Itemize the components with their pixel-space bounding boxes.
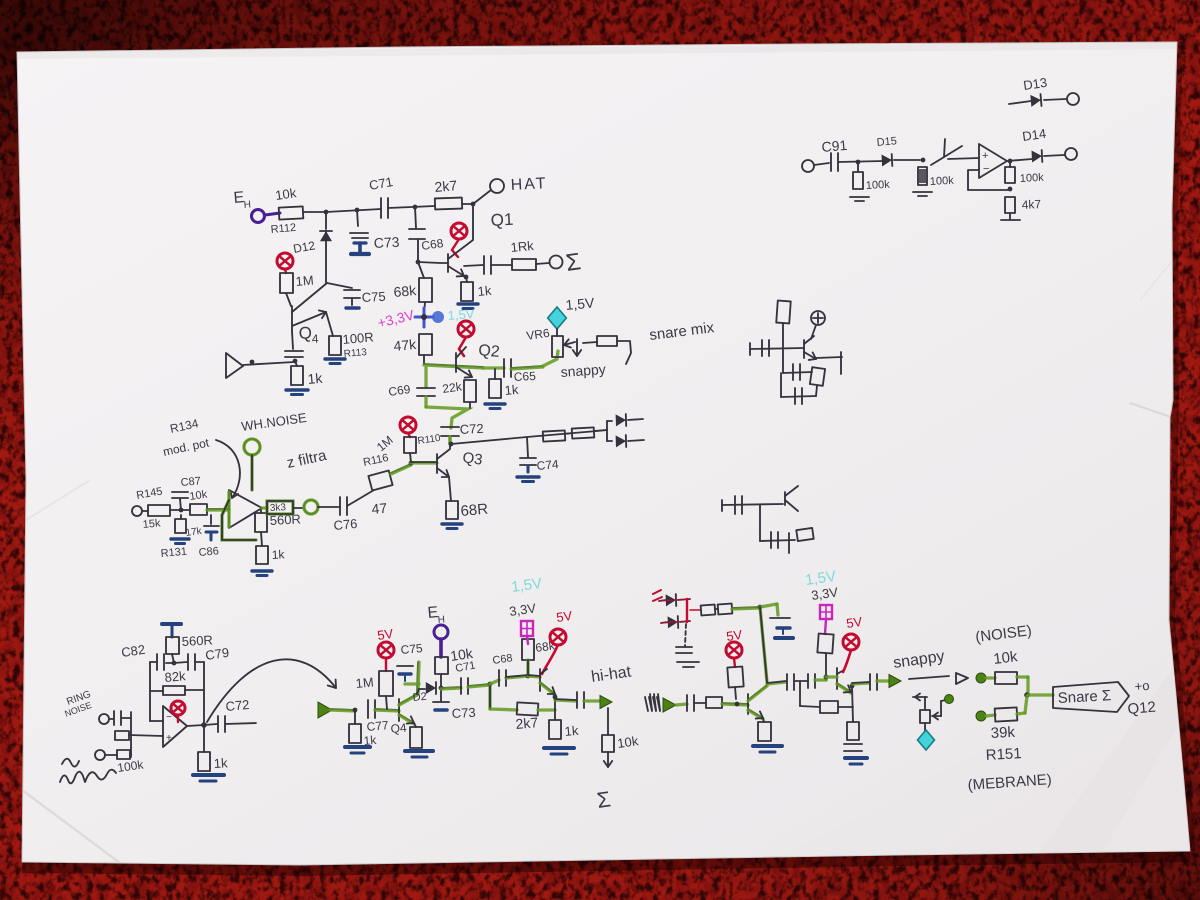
svg-text:100k: 100k — [866, 179, 891, 192]
svg-text:47: 47 — [371, 500, 388, 517]
svg-text:5V: 5V — [845, 614, 863, 631]
svg-text:22k: 22k — [441, 379, 463, 396]
svg-text:D2: D2 — [412, 691, 427, 704]
svg-text:10k: 10k — [189, 489, 209, 503]
svg-text:68k: 68k — [393, 282, 418, 300]
svg-text:C75: C75 — [361, 289, 386, 305]
svg-text:snappy: snappy — [560, 361, 606, 380]
svg-text:1k: 1k — [564, 723, 579, 739]
svg-text:2k7: 2k7 — [515, 714, 539, 732]
svg-text:R112: R112 — [270, 222, 296, 236]
svg-text:R131: R131 — [160, 546, 187, 560]
svg-text:10k: 10k — [616, 733, 639, 751]
svg-text:+: + — [982, 150, 988, 162]
svg-text:Q3: Q3 — [461, 449, 483, 469]
svg-text:C76: C76 — [333, 516, 358, 533]
svg-text:1,5V: 1,5V — [447, 306, 475, 323]
svg-text:1k: 1k — [477, 283, 492, 299]
svg-text:C74: C74 — [536, 457, 559, 473]
svg-text:15k: 15k — [142, 517, 161, 531]
svg-text:Q12: Q12 — [1127, 699, 1157, 718]
svg-text:3k3: 3k3 — [270, 502, 287, 514]
svg-text:2k7: 2k7 — [434, 177, 458, 195]
svg-text:4k7: 4k7 — [1021, 197, 1041, 212]
svg-text:D15: D15 — [876, 135, 897, 149]
svg-text:C72: C72 — [459, 421, 484, 437]
svg-text:R113: R113 — [343, 347, 367, 360]
svg-text:−: − — [166, 712, 172, 723]
svg-text:R151: R151 — [985, 745, 1022, 764]
svg-text:1k: 1k — [271, 547, 285, 562]
svg-text:5V: 5V — [555, 608, 573, 625]
svg-text:HAT: HAT — [510, 175, 548, 194]
svg-text:100k: 100k — [1020, 172, 1045, 185]
svg-text:560R: 560R — [181, 632, 213, 649]
svg-text:C72: C72 — [225, 697, 250, 714]
svg-text:1k: 1k — [307, 370, 324, 387]
svg-text:1k: 1k — [213, 755, 228, 771]
svg-text:Q2: Q2 — [478, 342, 501, 361]
svg-text:Q4: Q4 — [390, 721, 407, 736]
svg-text:1M: 1M — [355, 674, 374, 691]
svg-text:C91: C91 — [821, 137, 848, 155]
svg-text:5V: 5V — [376, 626, 394, 643]
svg-text:C86: C86 — [198, 545, 219, 559]
svg-text:C77: C77 — [366, 718, 389, 734]
svg-text:10k: 10k — [992, 648, 1019, 668]
svg-text:Q1: Q1 — [490, 210, 514, 230]
svg-text:H: H — [243, 199, 251, 211]
svg-text:1,5V: 1,5V — [565, 294, 596, 313]
svg-text:68R: 68R — [460, 501, 489, 520]
svg-text:100R: 100R — [342, 329, 374, 347]
svg-text:1Rk: 1Rk — [510, 238, 535, 255]
svg-text:+: + — [166, 733, 172, 744]
svg-text:10k: 10k — [274, 185, 297, 203]
svg-text:C75: C75 — [400, 641, 423, 657]
svg-text:C73: C73 — [451, 705, 476, 721]
svg-text:39k: 39k — [990, 724, 1016, 742]
svg-text:−: − — [983, 163, 989, 175]
svg-text:1k: 1k — [504, 382, 519, 398]
svg-text:C87: C87 — [180, 475, 201, 489]
svg-text:C73: C73 — [373, 234, 400, 251]
svg-text:82k: 82k — [164, 668, 187, 685]
svg-text:100k: 100k — [930, 175, 955, 188]
svg-text:4: 4 — [311, 332, 319, 346]
svg-text:1M: 1M — [295, 272, 314, 289]
svg-text:+o: +o — [1134, 678, 1150, 694]
svg-text:Q: Q — [298, 323, 312, 343]
svg-text:47k: 47k — [393, 336, 418, 354]
svg-text:Snare Σ: Snare Σ — [1057, 687, 1111, 707]
